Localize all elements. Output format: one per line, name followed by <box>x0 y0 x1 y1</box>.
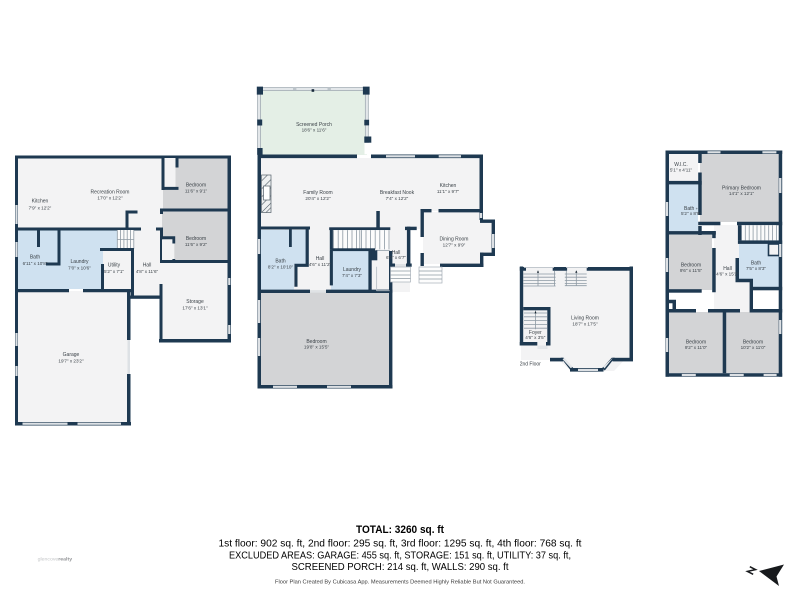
svg-text:6'11" x 10'8": 6'11" x 10'8" <box>23 261 48 266</box>
svg-text:Garage: Garage <box>63 352 80 358</box>
svg-text:Hall: Hall <box>143 263 152 269</box>
svg-text:2nd Floor: 2nd Floor <box>520 361 541 367</box>
svg-text:12'7" x 9'9": 12'7" x 9'9" <box>443 242 466 247</box>
svg-text:5'2" x 7'1": 5'2" x 7'1" <box>104 269 124 274</box>
svg-text:7'0" x 10'6": 7'0" x 10'6" <box>68 266 91 271</box>
svg-text:7'4" x 12'2": 7'4" x 12'2" <box>386 196 409 201</box>
svg-text:17'6" x 13'1": 17'6" x 13'1" <box>182 306 208 311</box>
svg-text:17'0" x 12'2": 17'0" x 12'2" <box>97 196 123 201</box>
svg-text:EXCLUDED AREAS: GARAGE: 455 sq: EXCLUDED AREAS: GARAGE: 455 sq. ft, STOR… <box>229 550 571 561</box>
svg-text:SCREENED PORCH: 214 sq. ft, WA: SCREENED PORCH: 214 sq. ft, WALLS: 290 s… <box>292 562 509 573</box>
svg-text:10'2" x 11'0": 10'2" x 11'0" <box>741 345 766 350</box>
svg-text:18'6" x 11'6": 18'6" x 11'6" <box>302 128 327 133</box>
svg-text:7'4" x 7'3": 7'4" x 7'3" <box>342 273 362 278</box>
svg-text:Laundry: Laundry <box>70 259 89 265</box>
svg-text:4'8" x 11'6": 4'8" x 11'6" <box>136 269 159 274</box>
svg-text:6'0" x 6'7": 6'0" x 6'7" <box>386 255 406 260</box>
svg-text:Floor Plan Created By Cubicasa: Floor Plan Created By Cubicasa App. Meas… <box>275 580 525 586</box>
svg-text:Storage: Storage <box>186 299 204 305</box>
svg-text:4'6" x 11'2": 4'6" x 11'2" <box>309 262 332 267</box>
svg-text:5'1" x 4'11": 5'1" x 4'11" <box>670 168 693 173</box>
svg-text:7'5" x 8'3": 7'5" x 8'3" <box>746 266 766 271</box>
svg-text:19'7" x 23'2": 19'7" x 23'2" <box>58 359 84 364</box>
svg-text:11'6" x 9'1": 11'6" x 9'1" <box>185 189 208 194</box>
svg-text:5'2" x 8'9": 5'2" x 8'9" <box>681 211 701 216</box>
svg-text:9'6" x 11'5": 9'6" x 11'5" <box>680 268 703 273</box>
svg-text:11'1" x 9'7": 11'1" x 9'7" <box>437 189 460 194</box>
svg-text:18'7" x 17'5": 18'7" x 17'5" <box>572 322 598 327</box>
svg-text:Kitchen: Kitchen <box>32 199 49 205</box>
svg-text:20'4" x 12'2": 20'4" x 12'2" <box>305 196 331 201</box>
svg-text:1st floor: 902 sq. ft, 2nd flo: 1st floor: 902 sq. ft, 2nd floor: 295 sq… <box>219 538 582 549</box>
svg-text:TOTAL: 3260 sq. ft: TOTAL: 3260 sq. ft <box>356 524 444 536</box>
svg-text:glencoverealty: glencoverealty <box>38 556 73 561</box>
svg-text:8'2" x 10'10": 8'2" x 10'10" <box>268 265 294 270</box>
svg-text:9'2" x 11'0": 9'2" x 11'0" <box>685 345 708 350</box>
svg-text:4'6" x 3'5": 4'6" x 3'5" <box>525 335 545 340</box>
svg-text:14'1" x 12'1": 14'1" x 12'1" <box>729 191 755 196</box>
svg-text:7'9" x 12'2": 7'9" x 12'2" <box>29 206 52 211</box>
svg-text:Bath: Bath <box>30 255 41 261</box>
svg-text:Utility: Utility <box>108 263 121 269</box>
svg-text:11'6" x 9'2": 11'6" x 9'2" <box>185 242 208 247</box>
svg-text:4'6" x 15'2": 4'6" x 15'2" <box>716 272 739 277</box>
svg-text:19'8" x 15'5": 19'8" x 15'5" <box>304 345 330 350</box>
